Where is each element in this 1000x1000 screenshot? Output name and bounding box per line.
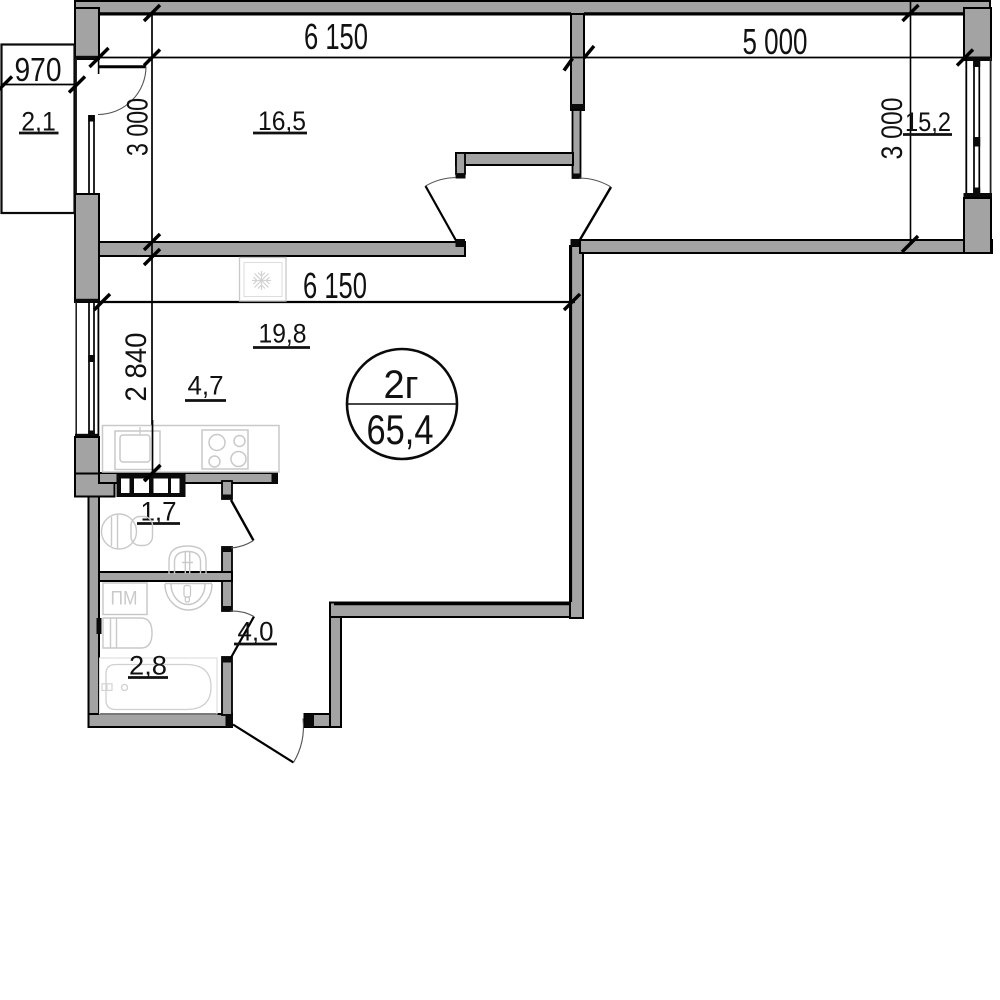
svg-text:2 840: 2 840 bbox=[120, 333, 153, 402]
svg-text:1,7: 1,7 bbox=[141, 497, 177, 527]
svg-text:15,2: 15,2 bbox=[905, 107, 951, 137]
svg-text:3 000: 3 000 bbox=[122, 98, 155, 156]
svg-text:2,8: 2,8 bbox=[129, 651, 167, 681]
svg-text:6 150: 6 150 bbox=[304, 16, 368, 57]
svg-text:6 150: 6 150 bbox=[303, 265, 367, 306]
svg-text:4,7: 4,7 bbox=[188, 371, 224, 401]
svg-text:ПМ: ПМ bbox=[111, 589, 138, 610]
svg-text:5 000: 5 000 bbox=[743, 21, 808, 62]
svg-text:4,0: 4,0 bbox=[238, 617, 274, 647]
svg-text:970: 970 bbox=[15, 51, 62, 88]
svg-text:65,4: 65,4 bbox=[367, 406, 434, 453]
svg-text:19,8: 19,8 bbox=[259, 319, 307, 349]
svg-text:16,5: 16,5 bbox=[258, 106, 306, 136]
svg-text:2г: 2г bbox=[384, 363, 419, 407]
